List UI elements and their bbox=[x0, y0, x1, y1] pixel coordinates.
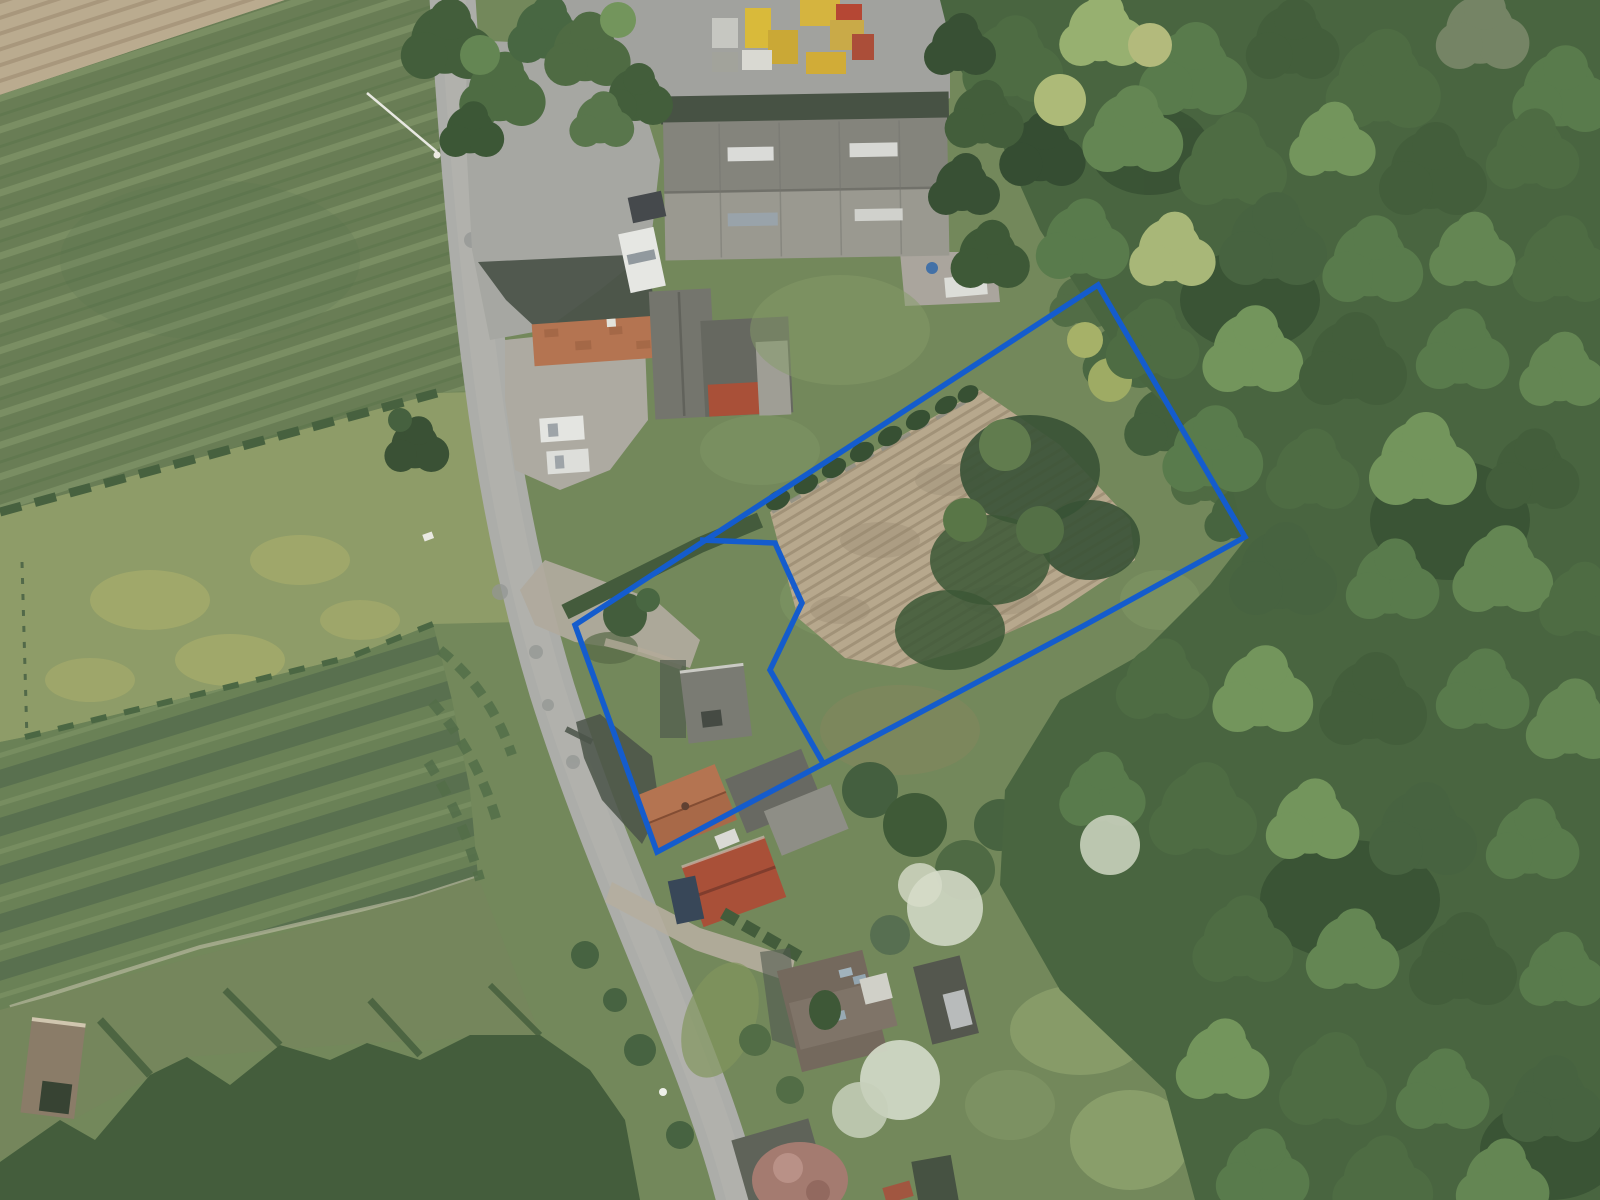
map-canvas[interactable] bbox=[0, 0, 1600, 1200]
aerial-orthophoto bbox=[0, 0, 1600, 1200]
